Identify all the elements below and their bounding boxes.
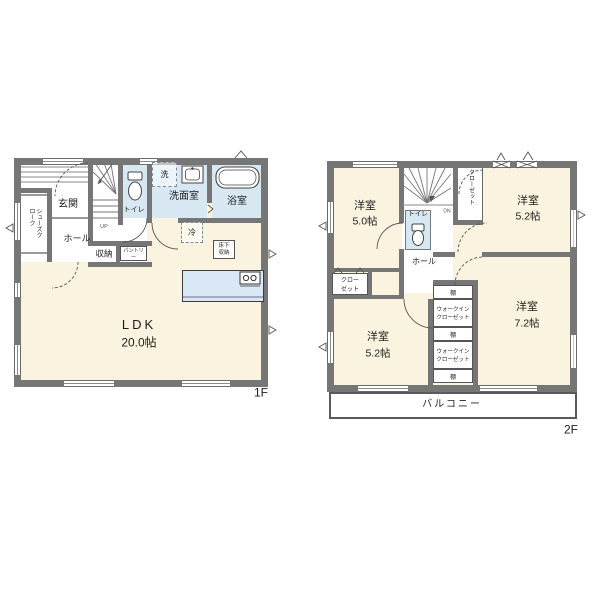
label-bedroom-sw-size: 5.2帖: [365, 348, 390, 359]
wall-wic-se: [473, 280, 478, 385]
wall-washroom-bath: [207, 158, 212, 203]
label-genkan: 玄関: [58, 200, 78, 211]
label-bedroom-nw-size: 5.0帖: [352, 216, 377, 227]
closet-box-sw: クローゼット: [332, 273, 368, 295]
shoes-shelf-line-bottom: [21, 252, 47, 254]
closet-box-label: クローゼット: [339, 275, 361, 293]
label-hall-2f: ホール: [412, 258, 436, 266]
window-1f-left-1: [14, 203, 21, 240]
window-1f-left-3: [14, 345, 21, 375]
label-washroom: 洗面室: [169, 192, 199, 203]
wall-nw-stairs-b: [399, 249, 404, 295]
wall-closet-row-top: [330, 268, 402, 272]
label-bedroom-sw: 洋室: [367, 332, 389, 344]
washer-label: 洗: [161, 169, 169, 180]
shelf-label-1: 棚: [450, 288, 456, 297]
wic-box-1: ウォークインクローゼット: [433, 299, 473, 327]
window-2f-bottom-sw: [358, 385, 408, 392]
fridge-box: 冷: [181, 222, 203, 243]
window-1f-bottom-1: [64, 380, 114, 387]
window-2f-left-1: [327, 202, 334, 233]
wall-storage-bottom: [88, 262, 152, 267]
window-1f-bottom-2: [182, 380, 230, 387]
pantry-label: パントリー: [121, 247, 146, 261]
pantry-box: パントリー: [120, 246, 147, 261]
window-1f-left-2: [14, 283, 21, 297]
label-closet-vertical: クローゼット: [467, 169, 474, 219]
label-bedroom-ne: 洋室: [517, 196, 539, 208]
floorplan-canvas: 洗 冷 床下収納 パントリー 玄関 シューズクローク ホール UP トイレ 洗面…: [0, 0, 600, 599]
washing-machine-box: 洗: [152, 162, 177, 187]
shelf-box-2: 棚: [433, 327, 473, 341]
label-bedroom-se: 洋室: [516, 302, 538, 314]
shelf-label-2: 棚: [450, 330, 456, 339]
label-bathroom: 浴室: [227, 197, 247, 208]
shoes-shelf-line-top: [21, 194, 47, 196]
window-2f-right-1: [570, 210, 577, 247]
label-balcony: バルコニー: [422, 400, 482, 411]
label-bedroom-nw: 洋室: [354, 201, 376, 213]
window-2f-top-x1: [493, 161, 510, 168]
wic-label-2: ウォークインクローゼット: [435, 347, 471, 363]
label-bedroom-ne-size: 5.2帖: [515, 211, 540, 222]
entrance-door-opening: [43, 158, 83, 165]
wall-closet-row-bottom: [330, 295, 404, 299]
genkan-step-line: [52, 217, 88, 219]
bathroom-floor: [212, 165, 261, 218]
label-toilet-2f: トイレ: [408, 212, 428, 219]
window-2f-top-x2: [517, 161, 537, 168]
wall-nw-stairs-a: [399, 168, 404, 223]
label-up: UP: [100, 225, 108, 231]
label-shoes-closet: シューズクローク: [27, 208, 41, 242]
wall-genkan-stairs: [88, 158, 93, 245]
wall-wet-bottom-a: [147, 218, 152, 223]
wall-closet-bottom: [453, 220, 483, 225]
wall-ne-bottom-b: [482, 252, 577, 257]
shelf-box-3: 棚: [433, 369, 473, 383]
window-2f-top-nw: [353, 161, 397, 168]
wic-label-1: ウォークインクローゼット: [435, 305, 471, 321]
shelf-box-1: 棚: [433, 285, 473, 299]
wall-stairs-toilet: [118, 158, 123, 225]
wic-box-2: ウォークインクローゼット: [433, 341, 473, 369]
label-ldk-size: 20.0帖: [121, 337, 156, 350]
shelf-label-3: 棚: [450, 372, 456, 381]
label-floor-1f: 1F: [254, 387, 268, 400]
kitchen-counter: [182, 270, 264, 302]
underfloor-label: 床下収納: [218, 243, 231, 256]
label-ldk: LDK: [122, 318, 156, 332]
label-toilet-1f: トイレ: [124, 206, 145, 213]
window-2f-right-2: [570, 335, 577, 368]
balcony-sliding-door: [480, 385, 537, 392]
label-storage: 収納: [95, 250, 112, 259]
window-2f-left-2: [327, 332, 334, 363]
wall-stairs-closet: [453, 168, 458, 223]
underfloor-storage-box: 床下収納: [213, 240, 235, 259]
label-hall-1f: ホール: [63, 234, 90, 243]
wall-shoes-right: [47, 188, 52, 262]
label-bedroom-se-size: 7.2帖: [514, 318, 539, 329]
wall-ne-bottom-a: [433, 252, 455, 257]
label-floor-2f: 2F: [564, 424, 578, 437]
label-dn: DN: [443, 209, 450, 214]
wall-closet-row-divider: [368, 268, 372, 299]
fridge-label: 冷: [188, 227, 196, 238]
